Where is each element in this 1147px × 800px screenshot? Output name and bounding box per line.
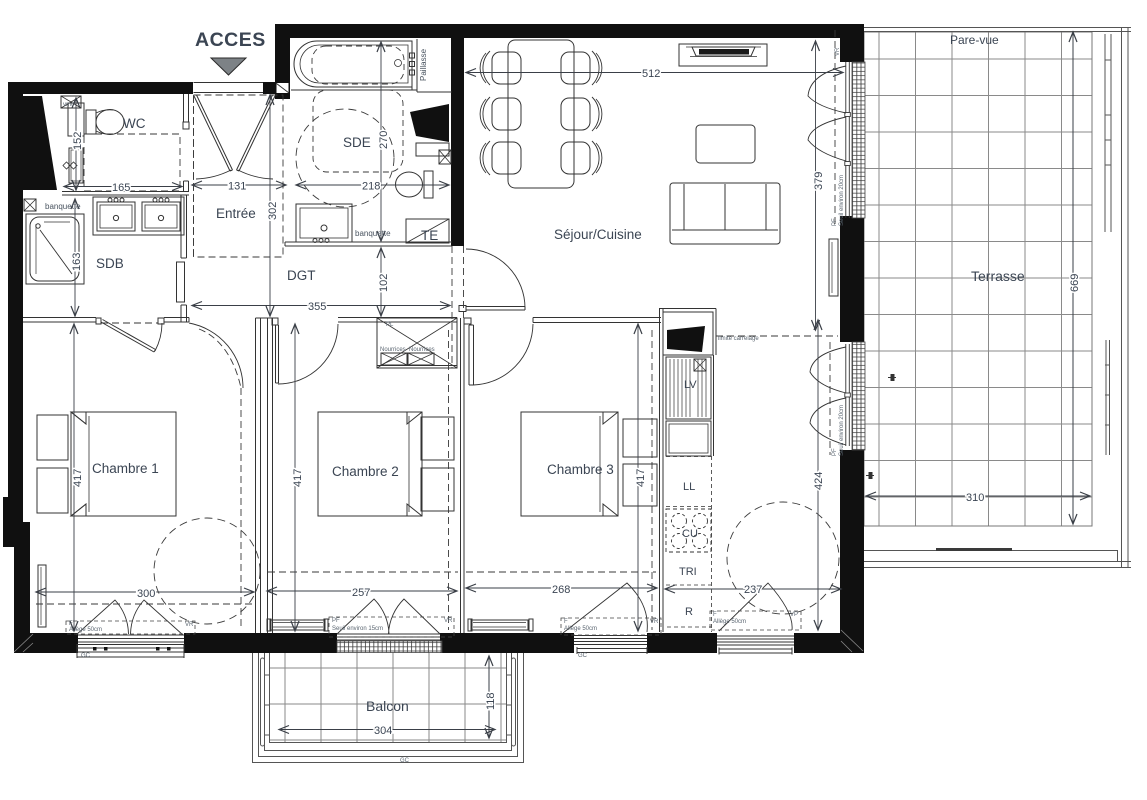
svg-text:TE: TE: [421, 228, 438, 243]
svg-text:Chambre 2: Chambre 2: [332, 464, 399, 479]
svg-text:LV: LV: [684, 379, 697, 391]
svg-text:GC: GC: [578, 653, 588, 659]
svg-text:355: 355: [308, 301, 326, 313]
svg-text:417: 417: [72, 469, 84, 487]
svg-text:131: 131: [228, 181, 246, 193]
svg-text:417: 417: [292, 469, 304, 487]
svg-text:Allège 50cm: Allège 50cm: [713, 619, 746, 625]
svg-text:R: R: [685, 606, 693, 618]
svg-text:Nourrices: Nourrices: [380, 347, 406, 353]
svg-text:VP: VP: [790, 612, 798, 618]
svg-text:Pare-vue: Pare-vue: [950, 33, 999, 47]
svg-text:218: 218: [362, 181, 380, 193]
svg-text:VR: VR: [444, 618, 453, 624]
svg-text:WC: WC: [123, 116, 146, 131]
svg-text:118: 118: [485, 692, 497, 710]
svg-text:F: F: [564, 619, 568, 625]
svg-text:424: 424: [813, 472, 825, 490]
svg-text:Chambre 3: Chambre 3: [547, 462, 614, 477]
svg-text:Séjour/Cuisine: Séjour/Cuisine: [554, 227, 642, 242]
svg-text:669: 669: [1069, 274, 1081, 292]
svg-text:Balcon: Balcon: [366, 698, 409, 714]
svg-text:vmc: vmc: [63, 102, 74, 108]
svg-text:Seuil environ 15cm: Seuil environ 15cm: [332, 626, 383, 632]
svg-text:417: 417: [635, 469, 647, 487]
svg-text:165: 165: [112, 182, 130, 194]
svg-text:GC: GC: [400, 758, 410, 764]
svg-text:DGT: DGT: [287, 268, 316, 283]
svg-text:Seuil environ 20cm: Seuil environ 20cm: [839, 175, 845, 226]
svg-text:163: 163: [71, 253, 83, 271]
svg-text:TRI: TRI: [679, 566, 697, 578]
svg-text:SDE: SDE: [343, 135, 371, 150]
svg-text:limite carrelage: limite carrelage: [718, 336, 759, 342]
svg-text:banquette: banquette: [45, 202, 81, 211]
svg-text:CU: CU: [682, 528, 698, 540]
svg-text:Terrasse: Terrasse: [971, 268, 1025, 284]
svg-text:512: 512: [642, 68, 660, 80]
svg-text:PF: PF: [332, 618, 340, 624]
svg-text:ACCES: ACCES: [195, 29, 266, 51]
svg-text:SDB: SDB: [96, 256, 124, 271]
svg-text:Allège 50cm: Allège 50cm: [564, 626, 597, 632]
svg-text:237: 237: [744, 584, 762, 596]
svg-text:300: 300: [137, 588, 155, 600]
svg-text:102: 102: [378, 274, 390, 292]
svg-text:304: 304: [374, 725, 392, 737]
svg-text:268: 268: [552, 584, 570, 596]
svg-text:VR: VR: [835, 47, 841, 56]
svg-text:F: F: [713, 612, 717, 618]
svg-text:LL: LL: [683, 481, 695, 493]
svg-text:152: 152: [72, 132, 84, 150]
svg-text:PL: PL: [386, 322, 394, 328]
svg-text:270: 270: [378, 131, 390, 149]
svg-text:PF: PF: [832, 218, 838, 226]
svg-text:379: 379: [813, 172, 825, 190]
svg-text:302: 302: [267, 202, 279, 220]
svg-text:257: 257: [352, 587, 370, 599]
svg-text:VR: VR: [185, 622, 194, 628]
svg-text:310: 310: [966, 492, 984, 504]
svg-text:banquette: banquette: [355, 229, 391, 238]
svg-text:Paillasse: Paillasse: [419, 48, 428, 81]
svg-text:PF: PF: [832, 448, 838, 456]
svg-text:VR: VR: [650, 619, 659, 625]
svg-text:Nourrices: Nourrices: [409, 347, 435, 353]
svg-text:Entrée: Entrée: [216, 206, 256, 221]
svg-text:Chambre 1: Chambre 1: [92, 461, 159, 476]
svg-text:GC: GC: [81, 653, 91, 659]
svg-text:Seuil environ 20cm: Seuil environ 20cm: [839, 405, 845, 456]
